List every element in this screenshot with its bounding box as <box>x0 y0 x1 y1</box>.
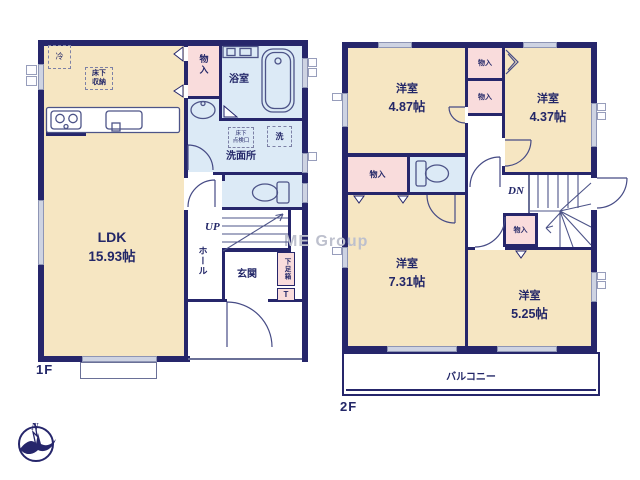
door-arc <box>505 140 531 166</box>
door-arc <box>449 107 465 123</box>
door-arcs <box>188 50 627 347</box>
door-marker <box>174 47 183 61</box>
toilet-bowl-icon <box>253 184 278 201</box>
toilet-tank-icon <box>277 182 289 203</box>
compass-north-label: N <box>30 421 39 433</box>
bath-door-icon <box>224 106 237 117</box>
washbasin-icon <box>191 102 215 119</box>
door-arc <box>188 180 215 207</box>
door-marker <box>398 196 408 203</box>
front-door-arc <box>227 302 272 347</box>
door-marker <box>516 251 526 258</box>
bathtub-inner <box>266 53 291 109</box>
door-marker <box>174 85 183 97</box>
staircase-2f <box>530 175 591 247</box>
door-arc <box>470 157 500 187</box>
door-marker <box>354 196 364 203</box>
bathtub-drain <box>275 58 281 64</box>
bath-counter-detail <box>227 49 235 56</box>
door-arc <box>475 217 505 247</box>
door-arc <box>597 178 627 208</box>
washbasin-faucet <box>201 102 205 106</box>
toilet-tank-icon <box>416 161 426 186</box>
floorplan-canvas: 下足箱 T 冷 床下 収納 床下 点検口 洗 <box>0 0 640 480</box>
fixtures-overlay: N <box>0 0 640 480</box>
door-arc <box>188 145 213 170</box>
folding-door-icon <box>506 50 518 74</box>
compass-icon: N <box>19 421 56 461</box>
bath-counter-detail <box>240 49 251 56</box>
door-arc <box>427 195 455 223</box>
toilet-bowl-icon <box>426 165 449 182</box>
staircase-1f <box>222 214 288 251</box>
